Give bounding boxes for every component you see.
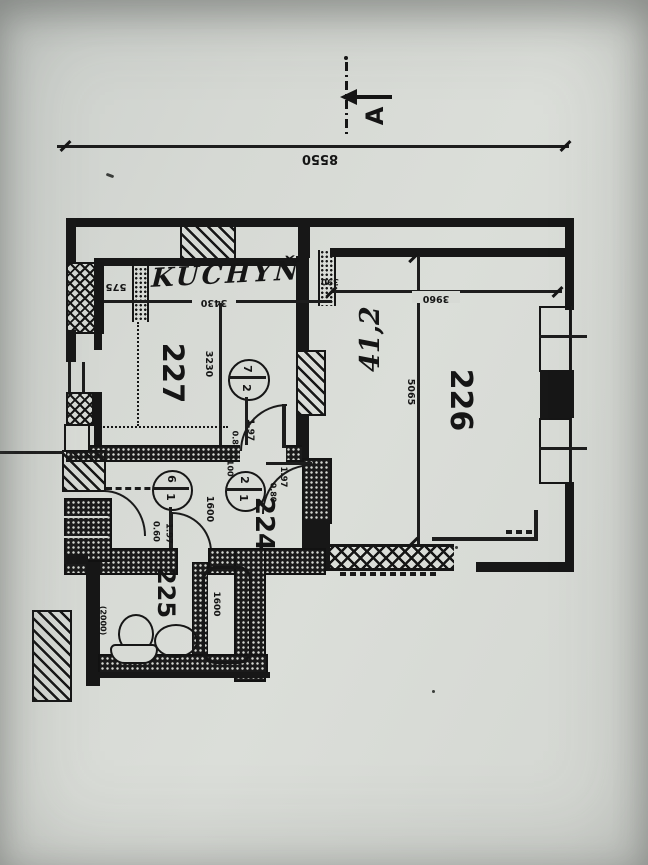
floor-plan-photo: A 8550 3430 575 KUCHYŇ 3230 227 7 2 (0, 0, 648, 865)
wall-joint-line-1 (64, 516, 108, 518)
door226-width: 0.80 (266, 478, 277, 508)
room227-depth-dim: 3230 (201, 341, 213, 387)
door227-height: 1.97 (242, 414, 254, 446)
door-mark-2-1-top: 2 (238, 470, 250, 490)
overall-dim-line (57, 145, 569, 148)
kitchen-strip-dim: 575 (99, 278, 133, 291)
wall-left-step (64, 554, 88, 564)
wall-left-top (66, 218, 76, 264)
removed-wall-dotted (100, 426, 228, 428)
door-mark-7-2-top: 7 (241, 359, 253, 379)
neighbor-wall-hatch (32, 610, 72, 702)
bathtub-dim: 1600 (208, 584, 220, 624)
door-mark-7-2-bottom: 2 (240, 378, 252, 398)
paper-speck-2 (455, 546, 458, 549)
wall-mid-top-stub (298, 222, 310, 258)
wall-226-top (330, 248, 566, 257)
bath-door-height: 1.97 (162, 519, 173, 549)
room226-number: 226 (441, 367, 475, 433)
washbasin (154, 624, 198, 658)
wall-strip-dim: 390 (317, 274, 343, 285)
wall-right-lower (565, 482, 574, 572)
room225-number: 225 (150, 566, 178, 620)
wall-left-new-masonry (64, 498, 112, 562)
room226-depth-dim: 5065 (403, 370, 415, 414)
tiny-dim-marks (340, 572, 440, 576)
wall-227-224-right (286, 445, 302, 462)
pier-crosshatch-1 (66, 262, 104, 334)
window1-frame (539, 306, 571, 372)
wall-bath-bottom-outer (92, 672, 270, 678)
window1-mullion (539, 335, 587, 338)
bath-door-width: 0.60 (149, 517, 160, 547)
door-mark-2-1-bottom: 1 (237, 488, 249, 508)
section-line-dot (344, 56, 348, 60)
overall-dim-label: 8550 (290, 150, 350, 165)
flue-hatch-block (180, 227, 236, 261)
bath-length-dim: (2000) (96, 598, 107, 644)
paper-speck (106, 173, 115, 179)
door-mark-6-1-bottom: 1 (164, 487, 176, 507)
room226-width-dim: 3960 (412, 291, 460, 303)
room227-dim-line (219, 303, 222, 451)
wall-bottom-226-hatched (318, 544, 454, 571)
wall-joint-line-2 (64, 536, 108, 538)
paper-speck-3 (432, 690, 435, 693)
kitchen-partition-strip (132, 258, 149, 322)
edge-extension-line (0, 451, 64, 454)
section-label: A (363, 101, 389, 131)
wall-right-upper (565, 218, 574, 310)
balcony-door-line (432, 537, 538, 541)
window2-frame (539, 418, 571, 484)
pier-hatched-mid (296, 350, 326, 416)
room227-number: 227 (155, 342, 187, 404)
threshold-dashes (506, 530, 534, 534)
entry-door-leaf-dashed (106, 487, 160, 490)
section-arrow-head-icon (340, 89, 357, 105)
wall-left-mid (66, 330, 76, 362)
balcony-door-stub (534, 510, 538, 541)
wall-bottom-right (476, 562, 574, 572)
door-mark-6-1-top: 6 (165, 469, 177, 489)
kitchen-partition-dotted (137, 322, 139, 426)
window2-mullion (539, 447, 587, 450)
wall-top (68, 218, 574, 227)
left-window-line-inner (82, 362, 85, 392)
left-wall-niche (64, 424, 90, 452)
pier-diag-hatch (62, 450, 106, 492)
section-arrow-shaft (354, 95, 392, 99)
wall-pier-right (540, 370, 574, 418)
handwritten-area-note: 41,2 (357, 312, 389, 372)
kitchen-name: KUCHYŇ (147, 258, 305, 304)
toilet-base (110, 644, 158, 664)
pier-crosshatch-2 (66, 392, 94, 426)
hall-width-dim: 1600 (202, 489, 214, 529)
left-window-line-outer (68, 362, 71, 392)
